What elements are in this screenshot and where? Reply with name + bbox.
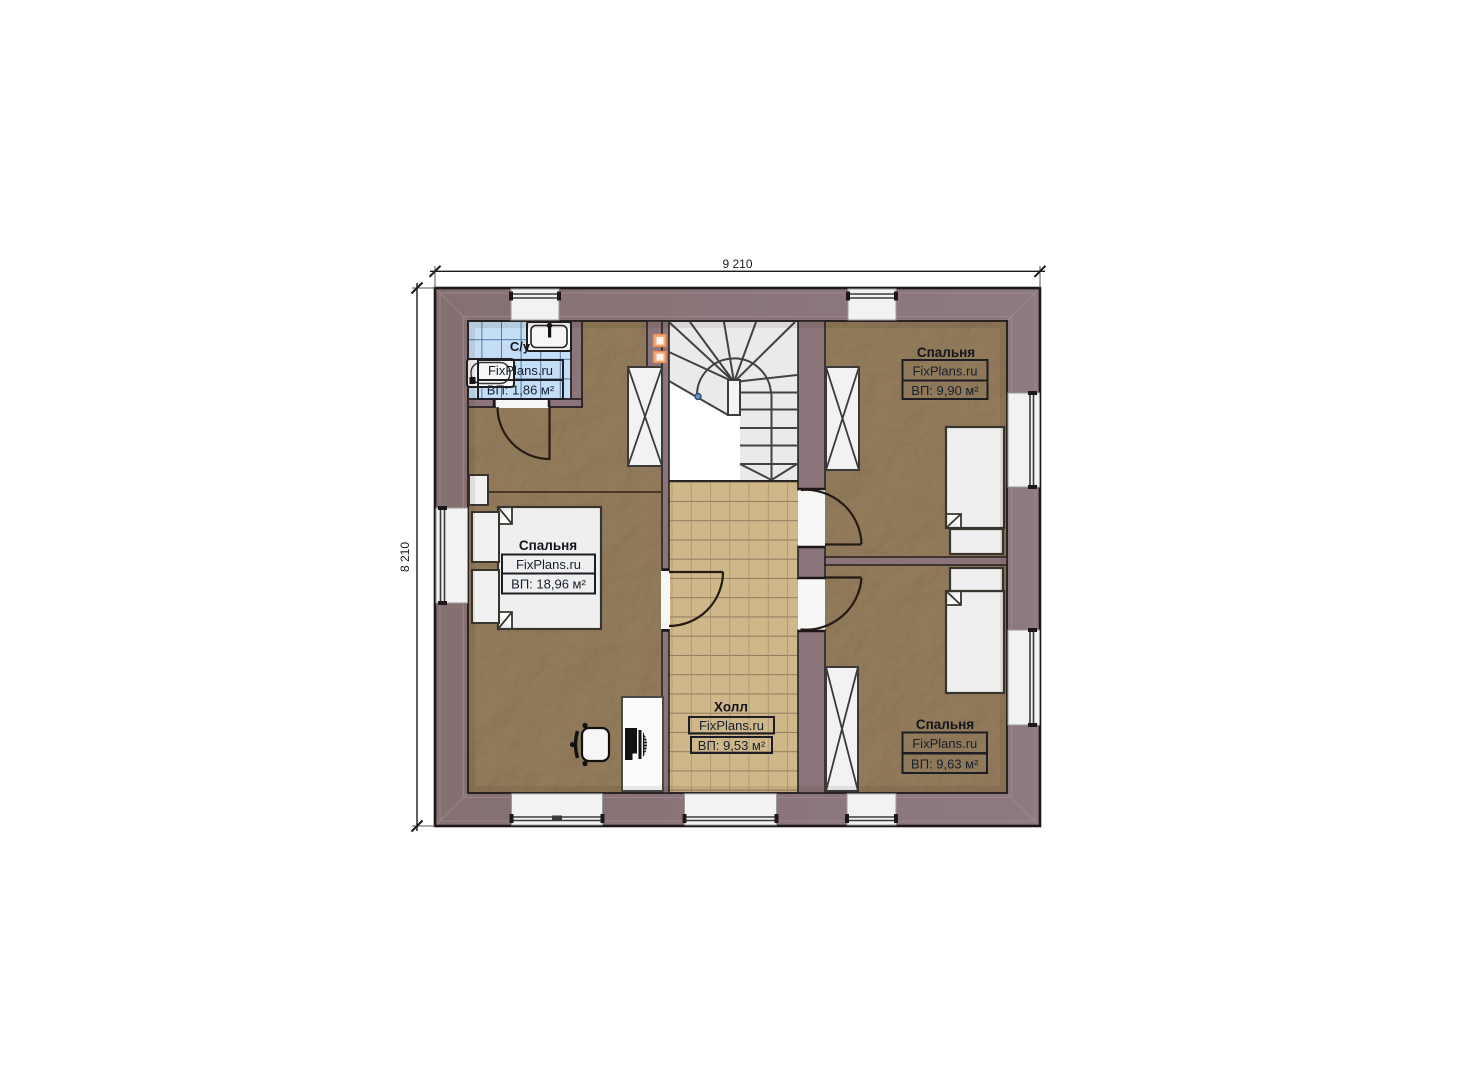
svg-text:8 210: 8 210 [398, 542, 412, 572]
svg-text:ВП: 18,96 м²: ВП: 18,96 м² [511, 577, 586, 592]
svg-text:FixPlans.ru: FixPlans.ru [699, 718, 764, 733]
svg-text:FixPlans.ru: FixPlans.ru [516, 557, 581, 572]
svg-text:ВП: 9,53 м²: ВП: 9,53 м² [698, 738, 766, 753]
svg-text:FixPlans.ru: FixPlans.ru [488, 363, 553, 378]
svg-text:С/у: С/у [510, 339, 531, 354]
svg-text:Спальня: Спальня [916, 717, 974, 732]
svg-text:ВП: 9,63 м²: ВП: 9,63 м² [911, 757, 979, 772]
svg-text:9 210: 9 210 [722, 257, 752, 271]
svg-text:FixPlans.ru: FixPlans.ru [912, 364, 977, 379]
svg-text:Спальня: Спальня [519, 538, 577, 553]
svg-text:Спальня: Спальня [917, 345, 975, 360]
svg-text:FixPlans.ru: FixPlans.ru [912, 736, 977, 751]
svg-text:Холл: Холл [714, 700, 748, 715]
svg-text:ВП: 1,86 м²: ВП: 1,86 м² [487, 383, 555, 398]
svg-text:ВП: 9,90 м²: ВП: 9,90 м² [911, 383, 979, 398]
